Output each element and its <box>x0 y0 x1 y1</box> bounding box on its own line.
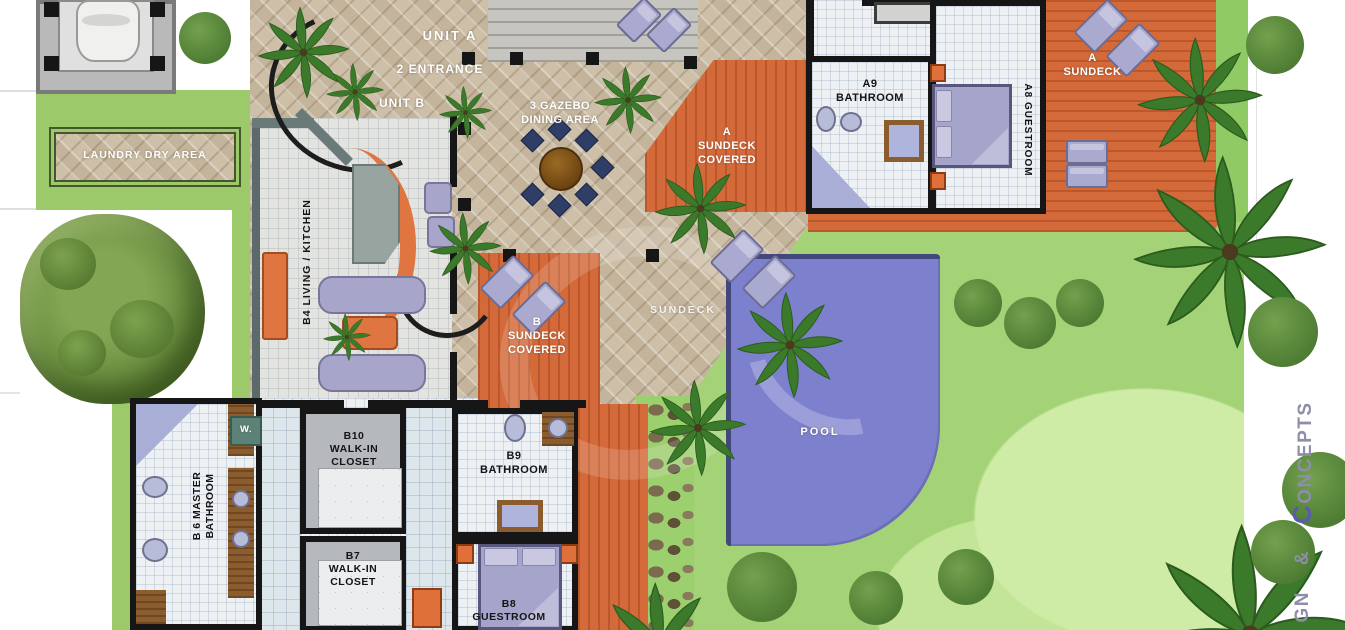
bush-icon <box>1004 297 1056 349</box>
label-sundeck-a-covered: A SUNDECK COVERED <box>672 126 782 167</box>
watermark-part1: GN <box>1292 591 1314 623</box>
post <box>458 198 471 211</box>
label-washer: W. <box>230 424 262 436</box>
label-living-kitchen-b4: B4 LIVING / KITCHEN <box>301 187 315 337</box>
label-unit-a: UNIT A <box>395 28 505 44</box>
label-bathroom-a9: A9 BATHROOM <box>820 78 920 106</box>
watermark-text: GN & CONCEPTS <box>1290 362 1316 630</box>
bush-icon <box>179 12 231 64</box>
palm-tree-icon <box>735 290 845 400</box>
nightstand <box>930 64 946 82</box>
nightstand <box>560 544 578 564</box>
sink <box>548 418 568 438</box>
cabinet <box>136 590 166 624</box>
post <box>150 2 165 17</box>
palm-tree-icon <box>438 85 493 140</box>
lounger <box>1066 140 1108 164</box>
sofa <box>318 276 426 314</box>
tree-lump-icon <box>110 300 174 358</box>
bush-icon <box>938 549 994 605</box>
palm-tree-icon <box>1135 35 1265 165</box>
bush-icon <box>1246 16 1304 74</box>
bush-icon <box>1056 279 1104 327</box>
label-sundeck-b-covered: B SUNDECK COVERED <box>487 316 587 357</box>
palm-tree-icon <box>322 312 372 362</box>
bush-icon <box>727 552 797 622</box>
bush-icon <box>1248 297 1318 367</box>
palm-tree-icon <box>595 580 725 630</box>
label-gazebo-dining: 3 GAZEBO DINING AREA <box>495 100 625 128</box>
watermark-amp: & <box>1292 550 1314 565</box>
watermark-part3: CONCEPTS <box>1289 401 1318 523</box>
palm-tree-icon <box>648 378 748 478</box>
lounger <box>1066 164 1108 188</box>
kitchen-island <box>352 164 400 264</box>
label-sundeck-a: A SUNDECK <box>1045 52 1140 80</box>
bush-icon <box>954 279 1002 327</box>
wall-segment <box>256 400 344 408</box>
nightstand <box>456 544 474 564</box>
palm-tree-icon <box>428 211 503 286</box>
closet-floor <box>318 468 402 528</box>
post <box>510 52 523 65</box>
toilet <box>816 106 836 132</box>
post <box>150 56 165 71</box>
label-closet-b10: B10 WALK-IN CLOSET <box>308 430 400 469</box>
label-sundeck-center: SUNDECK <box>633 304 733 317</box>
sink <box>840 112 862 132</box>
guide-line <box>0 208 36 210</box>
label-bathroom-b9: B9 BATHROOM <box>462 450 566 478</box>
post <box>586 52 599 65</box>
gazebo-table <box>539 147 583 191</box>
car-windshield <box>82 14 130 26</box>
pillow <box>522 548 556 566</box>
pillow <box>484 548 518 566</box>
hallway <box>260 404 302 630</box>
palm-tree-icon <box>653 161 748 256</box>
car-top-view <box>76 0 140 62</box>
label-unit-b: UNIT B <box>362 96 442 111</box>
wall-segment <box>450 352 457 408</box>
shower <box>497 500 543 532</box>
post <box>44 2 59 17</box>
label-guestroom-b8: B8 GUESTROOM <box>450 598 568 624</box>
shower <box>884 120 924 162</box>
tree-lump-icon <box>58 330 106 376</box>
big-tree-icon <box>20 214 205 404</box>
label-entrance: 2 ENTRANCE <box>375 62 505 77</box>
label-closet-b7: B7 WALK-IN CLOSET <box>306 550 400 589</box>
sink <box>232 530 250 548</box>
label-pool: POOL <box>785 426 855 440</box>
hall-cabinet <box>412 588 442 628</box>
wall-segment <box>368 400 488 408</box>
toilet <box>142 476 168 498</box>
nightstand <box>930 172 946 190</box>
wall-segment <box>806 0 814 62</box>
tree-lump-icon <box>40 238 96 290</box>
guide-line <box>0 90 36 92</box>
floor-plan: UNIT A 2 ENTRANCE UNIT B 3 GAZEBO DINING… <box>0 0 1345 630</box>
tall-cabinet <box>262 252 288 340</box>
sink <box>232 490 250 508</box>
bush-icon <box>849 571 903 625</box>
wall-segment <box>252 118 260 414</box>
pillow <box>936 90 952 122</box>
post <box>44 56 59 71</box>
wall-segment <box>520 400 586 408</box>
post <box>684 56 697 69</box>
toilet <box>142 538 168 562</box>
guide-line <box>0 392 20 394</box>
pillow <box>936 126 952 158</box>
label-master-bathroom-b6: B 6 MASTER BATHROOM <box>191 440 217 572</box>
armchair <box>424 182 452 214</box>
toilet <box>504 414 526 442</box>
label-laundry: LAUNDRY DRY AREA <box>58 149 232 162</box>
label-guestroom-a8: A8 GUESTROOM <box>1020 65 1034 195</box>
